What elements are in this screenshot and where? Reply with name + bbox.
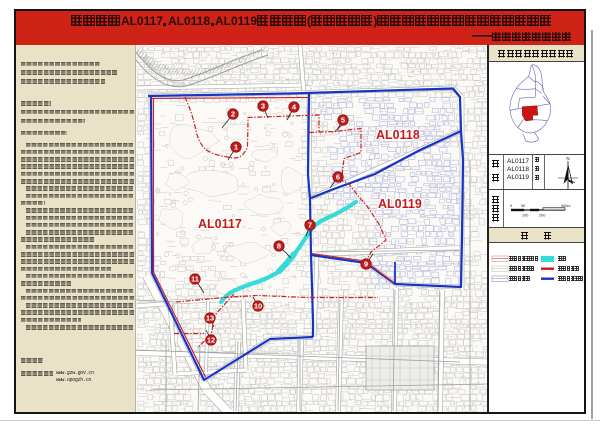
svg-text:8: 8 (277, 242, 281, 251)
svg-text:9: 9 (364, 260, 368, 269)
svg-text:12: 12 (207, 336, 215, 345)
svg-text:3: 3 (261, 102, 265, 111)
svg-text:AL0117: AL0117 (198, 217, 242, 231)
svg-text:AL0119: AL0119 (378, 197, 422, 211)
svg-text:2: 2 (231, 110, 235, 119)
svg-text:5: 5 (341, 116, 345, 125)
svg-text:50: 50 (521, 204, 525, 208)
svg-text:0: 0 (510, 204, 512, 208)
svg-text:1: 1 (234, 143, 238, 152)
svg-text:N: N (566, 156, 569, 161)
svg-text:200: 200 (539, 214, 545, 218)
svg-text:6: 6 (336, 173, 340, 182)
svg-text:100: 100 (522, 214, 528, 218)
svg-text:7: 7 (308, 221, 312, 230)
svg-text:11: 11 (191, 275, 199, 284)
svg-text:13: 13 (206, 314, 214, 323)
svg-text:400m: 400m (561, 204, 571, 208)
svg-text:10: 10 (254, 302, 262, 311)
svg-text:AL0118: AL0118 (376, 128, 420, 142)
